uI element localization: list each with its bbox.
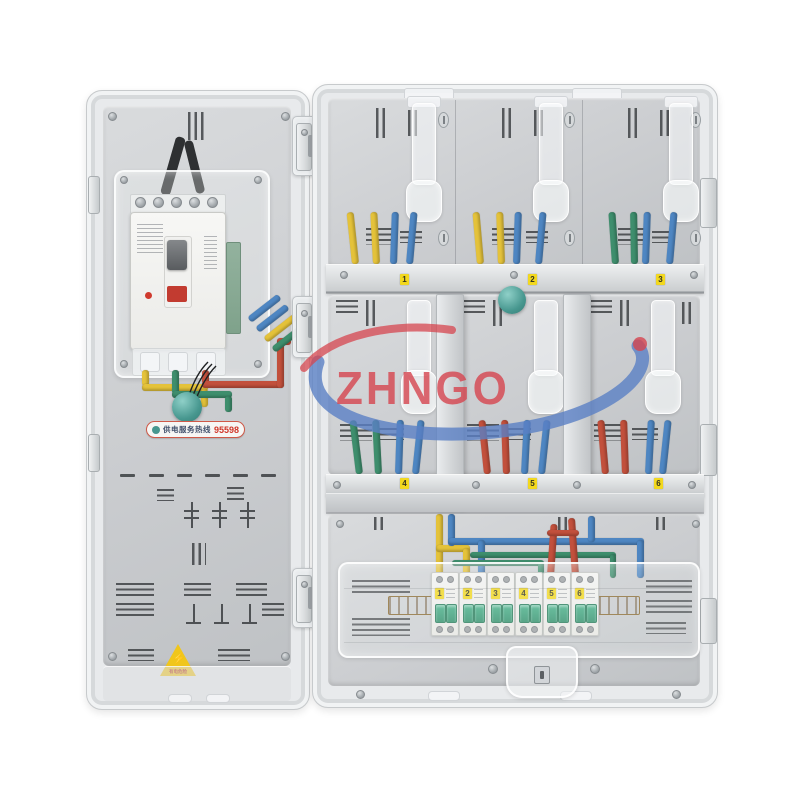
vent-slots bbox=[227, 487, 244, 501]
hotline-label: 供电服务热线 95598 bbox=[146, 421, 245, 438]
screw bbox=[108, 112, 117, 121]
breaker-indicator-dot bbox=[145, 292, 152, 299]
vent-slots bbox=[502, 108, 515, 138]
bay-number-tag: 5 bbox=[528, 478, 537, 489]
terminal-screw bbox=[207, 197, 218, 208]
screw bbox=[254, 360, 262, 368]
meter-window-bulb bbox=[663, 180, 699, 222]
bay-seam bbox=[582, 100, 583, 265]
door-latch bbox=[506, 646, 578, 698]
vent-slots bbox=[120, 474, 135, 477]
vent-slots bbox=[116, 583, 154, 598]
breaker-cover-window bbox=[338, 562, 700, 658]
screw-slot bbox=[438, 230, 449, 246]
screw bbox=[488, 664, 498, 674]
screw-slot bbox=[564, 230, 575, 246]
rail-seam bbox=[326, 512, 704, 514]
vent-slots bbox=[157, 489, 174, 501]
screw bbox=[120, 360, 128, 368]
screw bbox=[573, 481, 581, 489]
meter-window bbox=[539, 103, 563, 185]
screw bbox=[672, 690, 681, 699]
bay-number-tag: 4 bbox=[400, 478, 409, 489]
screw bbox=[340, 271, 348, 279]
vent-slots bbox=[116, 603, 154, 618]
vent-slots bbox=[590, 300, 612, 313]
bay-number-tag: 2 bbox=[528, 274, 537, 285]
cover-seam bbox=[344, 588, 692, 589]
breaker-spec-text bbox=[137, 224, 163, 254]
vent-slots bbox=[192, 543, 206, 565]
screw bbox=[472, 481, 480, 489]
keyhole-icon bbox=[540, 671, 544, 679]
vent-tee bbox=[214, 604, 229, 624]
terminal-screw bbox=[153, 197, 164, 208]
pcb-strip bbox=[226, 242, 241, 334]
vent-slots bbox=[262, 603, 284, 618]
bay-number-tag: 3 bbox=[656, 274, 665, 285]
bay-number-tag: 6 bbox=[654, 478, 663, 489]
screw bbox=[688, 481, 696, 489]
screw bbox=[108, 652, 117, 661]
hinge bbox=[700, 178, 717, 228]
vent-slots bbox=[188, 112, 204, 140]
meter-box-product-photo: 供电服务热线 95598 ⚡ 有电危险 bbox=[0, 0, 800, 800]
wire bbox=[470, 552, 616, 558]
door-bottom-band bbox=[103, 666, 291, 701]
vent-slots bbox=[184, 583, 211, 598]
vent-slots bbox=[236, 583, 267, 598]
wire bbox=[225, 396, 232, 412]
screw bbox=[690, 271, 698, 279]
screw bbox=[692, 520, 700, 528]
terminal-screw bbox=[171, 197, 182, 208]
screw bbox=[510, 271, 518, 279]
wire bbox=[588, 516, 595, 542]
screw bbox=[281, 112, 290, 121]
latch-lock bbox=[534, 666, 550, 684]
meter-window bbox=[669, 103, 693, 185]
hinge bbox=[700, 424, 717, 476]
wire bbox=[547, 530, 579, 536]
vent-slots bbox=[205, 474, 220, 477]
screw bbox=[356, 690, 365, 699]
screw bbox=[301, 310, 308, 317]
vent-slots bbox=[177, 474, 192, 477]
meter-rail bbox=[326, 474, 704, 495]
rail-lower-band bbox=[326, 493, 704, 512]
lead-seal bbox=[498, 286, 526, 314]
screw-slot bbox=[690, 230, 701, 246]
screw-slot bbox=[438, 112, 449, 128]
terminal-screw bbox=[189, 197, 200, 208]
vent-slots bbox=[374, 517, 387, 530]
bay-number-tag: 1 bbox=[400, 274, 409, 285]
screw bbox=[301, 581, 308, 588]
bottom-slot bbox=[168, 694, 192, 703]
hinge bbox=[700, 598, 717, 644]
screw bbox=[281, 652, 290, 661]
vent-slots bbox=[233, 474, 248, 477]
breaker-spec-text bbox=[204, 236, 217, 272]
screw bbox=[254, 176, 262, 184]
left-edge-hinge bbox=[88, 434, 100, 472]
screw bbox=[120, 176, 128, 184]
main-breaker-handle bbox=[167, 240, 187, 270]
terminal-cover bbox=[140, 352, 160, 372]
hotline-text: 供电服务热线 bbox=[163, 424, 211, 435]
screw bbox=[301, 129, 308, 136]
vent-slots bbox=[336, 300, 358, 313]
bottom-slot bbox=[206, 694, 230, 703]
vent-slots bbox=[376, 108, 389, 138]
terminal-screw bbox=[135, 197, 146, 208]
utility-logo-icon bbox=[152, 426, 160, 434]
bottom-slot bbox=[428, 691, 460, 701]
screw bbox=[333, 481, 341, 489]
vent-slots bbox=[463, 300, 485, 313]
meter-window bbox=[412, 103, 436, 185]
lightning-icon: ⚡ bbox=[172, 652, 186, 665]
vent-slots bbox=[628, 108, 641, 138]
vent-cross bbox=[184, 502, 199, 528]
vent-cross bbox=[240, 502, 255, 528]
vent-slots bbox=[128, 649, 154, 661]
watermark-brand-text: ZHNGO bbox=[336, 363, 510, 416]
vent-cross bbox=[212, 502, 227, 528]
breaker-on-indicator bbox=[167, 286, 187, 302]
cover-seam bbox=[344, 642, 692, 643]
hotline-number: 95598 bbox=[214, 425, 239, 435]
screw-slot bbox=[564, 112, 575, 128]
vent-slots bbox=[656, 517, 669, 530]
screw bbox=[336, 520, 344, 528]
vent-slots bbox=[261, 474, 276, 477]
vent-slots bbox=[682, 302, 692, 324]
vent-slots bbox=[149, 474, 164, 477]
bay-seam bbox=[455, 100, 456, 265]
vent-tee bbox=[242, 604, 257, 624]
left-edge-hinge bbox=[88, 176, 100, 214]
lead-seal bbox=[172, 392, 202, 422]
vent-slots bbox=[218, 649, 250, 661]
wire bbox=[630, 212, 638, 264]
screw bbox=[590, 664, 600, 674]
vent-tee bbox=[186, 604, 201, 624]
